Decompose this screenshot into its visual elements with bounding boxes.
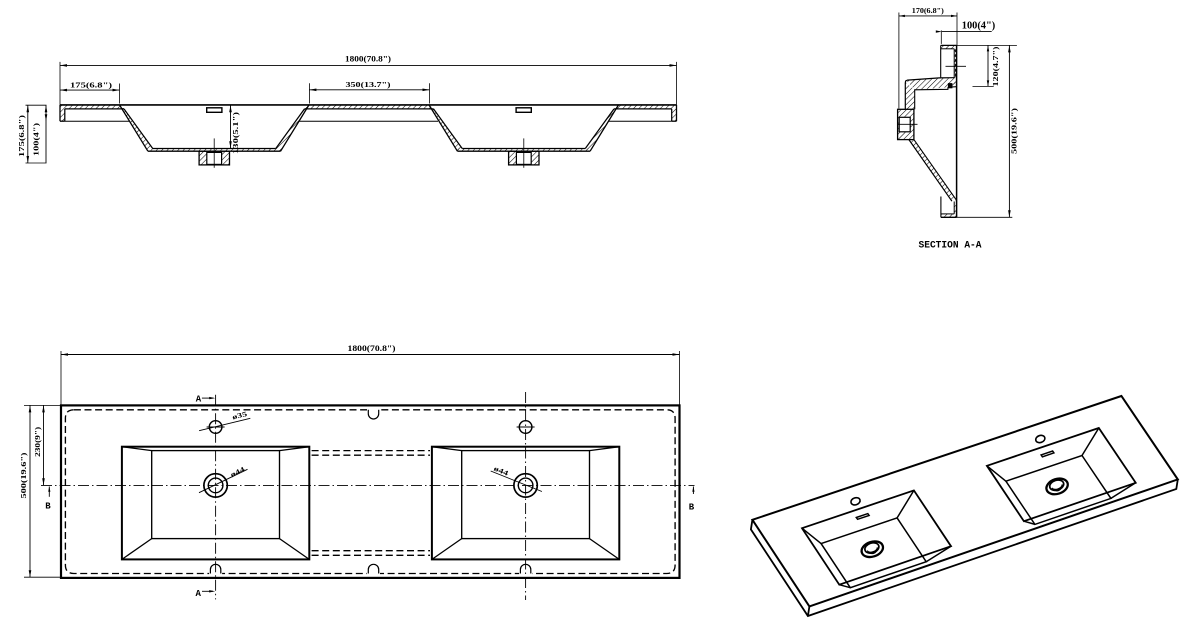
- svg-text:100(4"): 100(4"): [31, 122, 40, 156]
- svg-text:1800(70.8"): 1800(70.8"): [348, 343, 396, 353]
- svg-text:A: A: [195, 589, 201, 599]
- svg-text:A: A: [196, 395, 202, 405]
- svg-text:100(4"): 100(4"): [962, 19, 996, 31]
- svg-text:500(19.6"): 500(19.6"): [1010, 107, 1019, 154]
- svg-text:B: B: [45, 502, 51, 512]
- svg-text:500(19.6"): 500(19.6"): [19, 452, 28, 499]
- svg-text:120(4.7"): 120(4.7"): [991, 46, 1000, 87]
- svg-text:1800(70.8"): 1800(70.8"): [345, 54, 391, 64]
- svg-text:170(6.8"): 170(6.8"): [912, 7, 945, 15]
- svg-text:SECTION A-A: SECTION A-A: [919, 240, 982, 251]
- svg-text:175(6.8"): 175(6.8"): [17, 114, 26, 157]
- svg-text:130(5.1"): 130(5.1"): [231, 111, 240, 154]
- svg-text:350(13.7"): 350(13.7"): [346, 80, 392, 89]
- svg-text:B: B: [689, 503, 695, 513]
- svg-text:175(6.8"): 175(6.8"): [70, 80, 113, 89]
- svg-text:230(9"): 230(9"): [33, 426, 42, 457]
